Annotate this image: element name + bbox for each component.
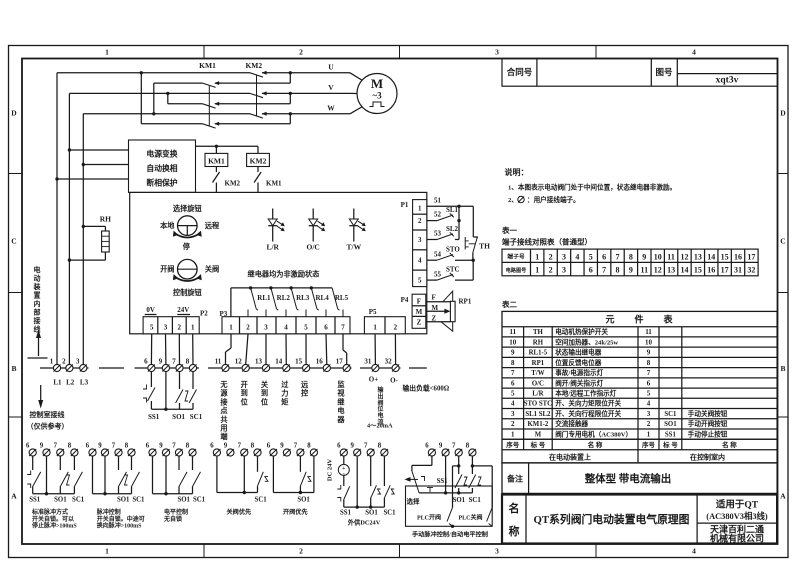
svg-text:11: 11 [509, 328, 516, 336]
svg-text:过: 过 [281, 380, 289, 389]
svg-text:SL2: SL2 [446, 225, 459, 233]
svg-text:17: 17 [747, 252, 755, 261]
svg-text:SO1: SO1 [172, 413, 185, 421]
svg-text:远: 远 [301, 381, 309, 389]
svg-text:9: 9 [280, 443, 284, 450]
svg-text:RL3: RL3 [296, 294, 310, 302]
svg-text:8: 8 [68, 443, 72, 450]
svg-text:1: 1 [229, 324, 233, 332]
svg-text:3: 3 [495, 547, 499, 556]
svg-text:外供DC24V: 外供DC24V [348, 518, 381, 527]
svg-text:2: 2 [394, 324, 398, 332]
svg-text:阀开/阀关指示灯: 阀开/阀关指示灯 [555, 378, 603, 387]
svg-text:器: 器 [336, 415, 345, 424]
svg-text:4～20mA: 4～20mA [367, 423, 393, 430]
svg-text:用: 用 [219, 425, 227, 433]
svg-text:L1: L1 [53, 378, 62, 386]
svg-text:1: 1 [105, 48, 109, 57]
svg-text:7: 7 [602, 266, 606, 275]
svg-text:(AC380V3相3线): (AC380V3相3线) [706, 511, 768, 521]
svg-text:QT系列阀门电动装置电气原理图: QT系列阀门电动装置电气原理图 [534, 512, 690, 526]
svg-text:元: 元 [605, 315, 614, 325]
svg-text:SS1: SS1 [437, 478, 449, 485]
svg-text:7: 7 [364, 443, 368, 450]
svg-text:U: U [328, 63, 334, 72]
svg-text:3: 3 [511, 410, 515, 418]
svg-text:6: 6 [144, 357, 148, 365]
svg-text:选择: 选择 [407, 497, 421, 506]
svg-text:5: 5 [150, 324, 154, 332]
svg-text:SC1: SC1 [72, 496, 85, 503]
svg-text:6: 6 [267, 443, 271, 450]
svg-text:2: 2 [549, 252, 553, 261]
svg-text:RP1: RP1 [532, 360, 545, 367]
svg-text:8: 8 [307, 443, 311, 450]
svg-text:5: 5 [511, 389, 515, 397]
svg-text:在控制室内: 在控制室内 [690, 453, 725, 462]
svg-text:电: 电 [337, 406, 345, 415]
svg-text:RL2: RL2 [277, 294, 291, 302]
svg-text:3: 3 [264, 324, 268, 332]
svg-text:标 号: 标 号 [662, 440, 678, 449]
svg-text:7: 7 [647, 369, 651, 377]
svg-text:空间加热器、24k/25w: 空间加热器、24k/25w [555, 337, 618, 346]
svg-text:9: 9 [40, 443, 44, 450]
svg-text:6: 6 [589, 266, 593, 275]
svg-text:选择旋钮: 选择旋钮 [173, 204, 203, 213]
svg-text:SO1: SO1 [664, 421, 677, 428]
svg-text:3: 3 [495, 48, 499, 57]
svg-text:6: 6 [210, 443, 214, 450]
svg-text:9: 9 [511, 349, 515, 357]
svg-text:1: 1 [535, 266, 539, 275]
svg-text:部: 部 [34, 308, 41, 317]
svg-text:6: 6 [86, 443, 90, 450]
svg-text:2、: 2、 [508, 197, 518, 204]
svg-text:手动关阀按钮: 手动关阀按钮 [688, 409, 728, 418]
svg-text:关阀: 关阀 [205, 265, 219, 274]
svg-text:远程: 远程 [205, 221, 220, 230]
svg-text:3: 3 [76, 357, 80, 365]
svg-text:RL5: RL5 [335, 294, 349, 302]
svg-text:B: B [11, 364, 16, 373]
svg-text:位: 位 [261, 397, 269, 406]
svg-text:KM1: KM1 [208, 156, 225, 165]
svg-text:装: 装 [33, 282, 41, 291]
svg-text:P1: P1 [401, 201, 409, 209]
svg-text:控制室接线: 控制室接线 [30, 410, 65, 419]
svg-text:到: 到 [261, 389, 268, 398]
svg-text:无: 无 [219, 381, 228, 389]
svg-text:F: F [432, 294, 436, 302]
svg-text:O+: O+ [369, 376, 378, 384]
svg-text:12: 12 [654, 266, 662, 275]
svg-text:16: 16 [316, 357, 324, 365]
svg-text:32: 32 [747, 266, 755, 275]
svg-text:关: 关 [261, 380, 269, 389]
svg-text:10: 10 [645, 338, 653, 346]
svg-text:5: 5 [418, 277, 422, 285]
svg-text:在电动装置上: 在电动装置上 [549, 453, 591, 462]
svg-text:3: 3 [562, 266, 566, 275]
svg-text:14: 14 [275, 357, 283, 365]
svg-text:开: 开 [241, 381, 248, 389]
svg-text:16: 16 [734, 252, 742, 261]
svg-text:DC 24V: DC 24V [327, 459, 334, 482]
svg-text:12: 12 [235, 357, 243, 365]
svg-text:KM2: KM2 [245, 61, 262, 70]
svg-text:控: 控 [301, 389, 309, 398]
svg-text:RP1: RP1 [459, 298, 472, 306]
svg-text:16: 16 [707, 266, 715, 275]
svg-text:A: A [11, 492, 17, 501]
svg-text:9: 9 [224, 443, 228, 450]
svg-text:电: 电 [377, 412, 383, 420]
svg-text:8: 8 [511, 359, 515, 367]
svg-text:6: 6 [425, 443, 429, 450]
svg-text:端子号: 端子号 [507, 253, 525, 261]
svg-text:T/W: T/W [531, 370, 544, 377]
svg-text:L2: L2 [66, 378, 75, 386]
svg-text:1: 1 [373, 324, 377, 332]
svg-text:14: 14 [707, 252, 715, 261]
svg-text:31: 31 [364, 357, 372, 365]
svg-text:17: 17 [336, 357, 344, 365]
svg-text:STO: STO [446, 246, 460, 254]
svg-text:52: 52 [434, 211, 442, 219]
svg-text:KM1: KM1 [199, 61, 216, 70]
svg-text:SO1: SO1 [54, 496, 67, 503]
svg-text:SS1: SS1 [148, 413, 160, 421]
svg-text:端: 端 [220, 432, 228, 441]
svg-text:1: 1 [50, 357, 54, 365]
svg-text:6: 6 [324, 324, 328, 332]
svg-text:表二: 表二 [502, 299, 517, 309]
svg-text:1、本图表示电动阀门处于中间位置，状态继电器非激励。: 1、本图表示电动阀门处于中间位置，状态继电器非激励。 [508, 183, 676, 192]
svg-text:共: 共 [220, 415, 228, 424]
svg-text:7: 7 [112, 443, 116, 450]
svg-text:T/W: T/W [347, 243, 362, 252]
svg-text:矩: 矩 [280, 397, 288, 406]
svg-text:11: 11 [667, 252, 675, 261]
svg-text:SO1: SO1 [453, 497, 466, 504]
svg-text:脉冲控制: 脉冲控制 [96, 508, 121, 516]
svg-text:B: B [780, 364, 785, 373]
svg-text:2: 2 [299, 547, 303, 556]
svg-text:说明：: 说明： [505, 167, 529, 177]
svg-text:M: M [416, 308, 423, 316]
svg-text:电路图号: 电路图号 [506, 266, 527, 274]
svg-text:13: 13 [667, 266, 675, 275]
svg-text:内: 内 [34, 299, 41, 308]
svg-text:9: 9 [642, 252, 646, 261]
svg-text:置: 置 [34, 291, 41, 300]
svg-text:位: 位 [377, 405, 383, 413]
svg-text:力: 力 [281, 389, 288, 398]
svg-text:线: 线 [34, 325, 41, 334]
svg-text:32: 32 [385, 357, 393, 365]
svg-text:TH: TH [533, 329, 544, 336]
svg-text:手动开阀按钮: 手动开阀按钮 [688, 419, 728, 428]
svg-text:KM1-2: KM1-2 [528, 421, 549, 428]
svg-text:17: 17 [721, 266, 729, 275]
svg-text:P5: P5 [369, 308, 377, 316]
svg-text:9: 9 [629, 266, 633, 275]
svg-text:54: 54 [434, 251, 442, 259]
svg-text:8: 8 [647, 359, 651, 367]
svg-text:1: 1 [535, 252, 539, 261]
svg-text:STO STC: STO STC [524, 401, 552, 408]
svg-text:11: 11 [641, 266, 649, 275]
svg-text:关阀优先: 关阀优先 [227, 508, 253, 516]
svg-text:RH: RH [533, 339, 544, 346]
svg-text:状态输出继电器: 状态输出继电器 [555, 348, 602, 357]
svg-text:2: 2 [511, 420, 515, 428]
svg-text:PLC开阀: PLC开阀 [417, 514, 441, 522]
svg-text:SC1: SC1 [469, 497, 482, 504]
svg-text:表一: 表一 [502, 225, 517, 235]
svg-text:7: 7 [294, 443, 298, 450]
svg-text:xqt3v: xqt3v [716, 76, 739, 86]
svg-text:输: 输 [377, 386, 384, 394]
svg-text:Z: Z [417, 319, 422, 327]
svg-text:适用于QT: 适用于QT [716, 499, 759, 511]
svg-text:视: 视 [337, 389, 345, 398]
svg-text:SS1: SS1 [340, 510, 352, 517]
svg-text:9: 9 [647, 349, 651, 357]
svg-text:8: 8 [629, 252, 633, 261]
svg-text:8: 8 [466, 443, 470, 450]
svg-text:停: 停 [183, 242, 190, 251]
svg-text:0V: 0V [146, 306, 155, 314]
svg-text:图号: 图号 [655, 67, 673, 77]
svg-text:RH: RH [100, 215, 111, 224]
svg-text:PLC关阀: PLC关阀 [458, 514, 482, 522]
svg-text:1: 1 [105, 547, 109, 556]
svg-text:接: 接 [220, 397, 228, 406]
svg-text:端子接线对照表（普通型）: 端子接线对照表（普通型） [502, 237, 592, 247]
svg-text:RL1: RL1 [257, 294, 271, 302]
svg-text:P2: P2 [200, 310, 208, 318]
svg-text:V: V [328, 83, 334, 92]
svg-text:本地: 本地 [160, 221, 175, 230]
svg-text:序号: 序号 [505, 440, 520, 449]
svg-text:交流接触器: 交流接触器 [555, 419, 588, 428]
svg-text:手动停止按钮: 手动停止按钮 [688, 429, 728, 438]
svg-text:SC1: SC1 [383, 510, 396, 517]
svg-text:W: W [327, 104, 335, 113]
svg-text:开阀: 开阀 [160, 265, 174, 274]
svg-text:输出负载<600Ω: 输出负载<600Ω [403, 384, 450, 393]
svg-text:2: 2 [647, 420, 651, 428]
svg-text:手动脉冲控制/自动电平控制: 手动脉冲控制/自动电平控制 [412, 531, 488, 539]
svg-text:自动换相: 自动换相 [146, 163, 177, 173]
svg-text:8: 8 [616, 266, 620, 275]
svg-text:7: 7 [511, 369, 515, 377]
svg-text:11: 11 [645, 328, 652, 336]
svg-text:6: 6 [647, 379, 651, 387]
svg-text:到: 到 [241, 389, 248, 398]
svg-text:4: 4 [647, 400, 651, 408]
svg-text:开阀优先: 开阀优先 [283, 508, 309, 516]
svg-text:监: 监 [337, 380, 345, 389]
svg-text:SC1: SC1 [190, 413, 203, 421]
svg-text:电动机热保护开关: 电动机热保护开关 [555, 327, 608, 336]
svg-text:8: 8 [251, 443, 255, 450]
svg-text:O/C: O/C [307, 243, 320, 252]
svg-text:11: 11 [215, 357, 222, 365]
svg-text:8: 8 [125, 443, 129, 450]
svg-text:8: 8 [378, 443, 382, 450]
svg-text:M: M [371, 76, 383, 91]
svg-text:7: 7 [172, 443, 176, 450]
svg-text:SO1: SO1 [365, 510, 378, 517]
svg-text:L/R: L/R [266, 243, 279, 252]
svg-text:2: 2 [299, 48, 303, 57]
svg-text:TH: TH [479, 242, 490, 251]
svg-text:表: 表 [662, 314, 673, 325]
svg-text:5: 5 [589, 252, 593, 261]
svg-text:D: D [780, 109, 786, 118]
svg-text:C: C [11, 237, 16, 246]
svg-text:控制旋钮: 控制旋钮 [173, 288, 203, 297]
svg-text:1: 1 [511, 430, 515, 438]
svg-text:断相保护: 断相保护 [146, 178, 177, 188]
svg-text:KM2: KM2 [250, 156, 267, 165]
svg-text:序号: 序号 [641, 440, 656, 449]
svg-text:O-: O- [390, 377, 398, 385]
svg-text:无自锁: 无自锁 [163, 515, 182, 523]
svg-text:SC1: SC1 [132, 496, 145, 503]
svg-text:SO1: SO1 [297, 497, 310, 504]
svg-text:标准脉冲方式: 标准脉冲方式 [31, 508, 68, 516]
svg-text:SL1 SL2: SL1 SL2 [525, 411, 551, 418]
svg-text:7: 7 [452, 443, 456, 450]
svg-text:SC1: SC1 [193, 496, 206, 503]
svg-text:名 称: 名 称 [588, 440, 603, 449]
svg-text:M: M [535, 431, 542, 438]
svg-text:L/R: L/R [532, 390, 543, 397]
svg-text:整体型 带电流输出: 整体型 带电流输出 [584, 472, 672, 485]
svg-text:3: 3 [562, 252, 566, 261]
svg-text:9: 9 [159, 443, 163, 450]
svg-text:2: 2 [549, 266, 553, 275]
svg-text:事故/电源指示灯: 事故/电源指示灯 [555, 368, 603, 377]
svg-text:备注: 备注 [506, 474, 523, 484]
svg-text:14: 14 [680, 266, 688, 275]
svg-text:4: 4 [418, 257, 422, 265]
svg-text:15: 15 [295, 357, 303, 365]
svg-text:KM1: KM1 [266, 180, 282, 188]
svg-text:8: 8 [186, 443, 190, 450]
svg-text:SC1: SC1 [255, 497, 268, 504]
svg-text:6: 6 [511, 379, 515, 387]
svg-text:件: 件 [634, 314, 643, 325]
svg-text:位: 位 [241, 397, 249, 406]
svg-text:换向脉冲>100mS: 换向脉冲>100mS [97, 521, 142, 529]
svg-text:（仅供参考）: （仅供参考） [27, 422, 69, 431]
svg-text:标 号: 标 号 [530, 440, 546, 449]
svg-text:开关自锁。可以: 开关自锁。可以 [32, 515, 74, 523]
svg-text:4: 4 [692, 48, 696, 57]
svg-text:53: 53 [434, 230, 442, 238]
svg-text:15: 15 [694, 266, 702, 275]
svg-text:2: 2 [62, 357, 66, 365]
svg-text:STC: STC [446, 266, 460, 274]
svg-text:15: 15 [721, 252, 729, 261]
svg-text:电: 电 [34, 265, 41, 274]
svg-text:接: 接 [34, 316, 41, 325]
svg-text:SS1: SS1 [29, 496, 41, 503]
svg-text:SO1: SO1 [117, 496, 130, 503]
svg-text:~3: ~3 [372, 91, 382, 101]
svg-text:4: 4 [284, 324, 288, 332]
svg-text:SO1: SO1 [177, 496, 190, 503]
svg-text:4: 4 [575, 252, 579, 261]
svg-text:阀门专用电机（AC380V）: 阀门专用电机（AC380V） [555, 429, 632, 438]
svg-text:9: 9 [98, 443, 102, 450]
svg-text:6: 6 [146, 443, 150, 450]
svg-text:3: 3 [418, 236, 422, 244]
svg-text:3: 3 [164, 324, 168, 332]
svg-text:SS1: SS1 [665, 431, 677, 438]
svg-text:6: 6 [337, 443, 341, 450]
svg-text:9: 9 [439, 443, 443, 450]
svg-text:F: F [417, 298, 421, 306]
svg-text:5: 5 [647, 389, 651, 397]
svg-text:6: 6 [26, 443, 30, 450]
svg-text:机械有限公司: 机械有限公司 [710, 533, 764, 544]
svg-text:24V: 24V [177, 306, 189, 314]
svg-text:动: 动 [34, 274, 41, 283]
svg-text:C: C [780, 237, 785, 246]
svg-text:1: 1 [191, 324, 195, 332]
svg-text:停止脉冲>100mS: 停止脉冲>100mS [32, 521, 77, 529]
svg-text:3: 3 [647, 410, 651, 418]
svg-text:7: 7 [616, 252, 620, 261]
svg-text:电源变换: 电源变换 [146, 149, 177, 159]
svg-text:2: 2 [246, 324, 250, 332]
svg-text:31: 31 [734, 266, 742, 275]
svg-text:1: 1 [647, 430, 651, 438]
svg-text:：用户接线端子。: ：用户接线端子。 [527, 195, 580, 204]
svg-text:12: 12 [680, 252, 688, 261]
svg-text:O/C: O/C [532, 380, 544, 387]
svg-text:开、关向力矩限位开关: 开、关向力矩限位开关 [555, 399, 621, 408]
svg-text:7: 7 [341, 324, 345, 332]
svg-text:KM2: KM2 [225, 180, 241, 188]
svg-text:A: A [780, 492, 786, 501]
svg-text:SC1: SC1 [664, 411, 677, 418]
svg-text:4: 4 [511, 400, 515, 408]
svg-text:点: 点 [220, 406, 228, 415]
svg-text:51: 51 [434, 197, 442, 205]
svg-text:D: D [11, 109, 17, 118]
svg-text:名 称: 名 称 [722, 440, 737, 449]
svg-text:13: 13 [694, 252, 702, 261]
svg-text:55: 55 [434, 271, 442, 279]
svg-text:5: 5 [304, 324, 308, 332]
svg-text:2: 2 [178, 324, 182, 332]
svg-text:6: 6 [602, 252, 606, 261]
svg-text:10: 10 [654, 252, 662, 261]
svg-text:名: 名 [509, 501, 520, 515]
svg-text:4: 4 [692, 547, 696, 556]
svg-text:继电器均为非激励状态: 继电器均为非激励状态 [248, 270, 321, 279]
svg-text:RL1-5: RL1-5 [529, 350, 548, 357]
svg-text:继: 继 [337, 397, 344, 406]
svg-text:8: 8 [186, 357, 190, 365]
